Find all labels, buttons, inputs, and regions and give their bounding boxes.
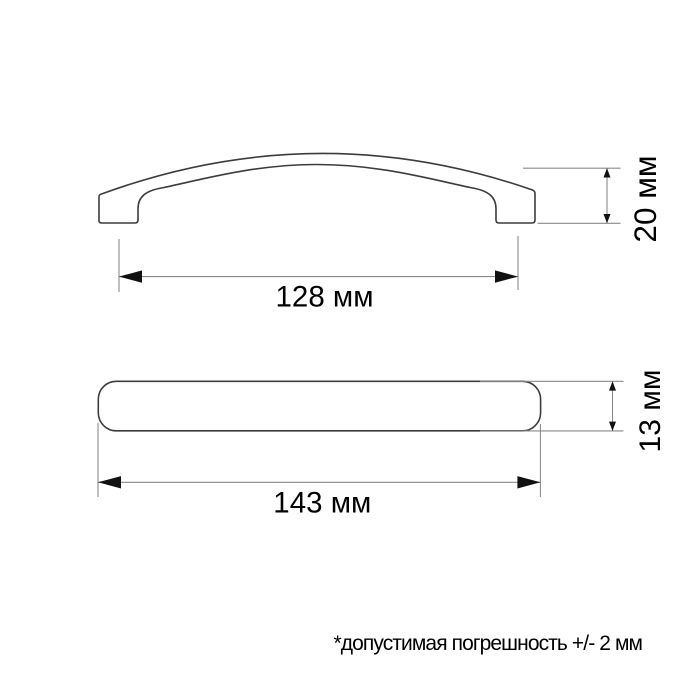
svg-text:143 мм: 143 мм xyxy=(273,487,371,520)
svg-text:20 мм: 20 мм xyxy=(627,155,663,242)
svg-text:128 мм: 128 мм xyxy=(276,281,374,314)
svg-text:*допустимая погрешность +/- 2: *допустимая погрешность +/- 2 мм xyxy=(334,632,643,655)
svg-text:13 мм: 13 мм xyxy=(634,370,667,453)
